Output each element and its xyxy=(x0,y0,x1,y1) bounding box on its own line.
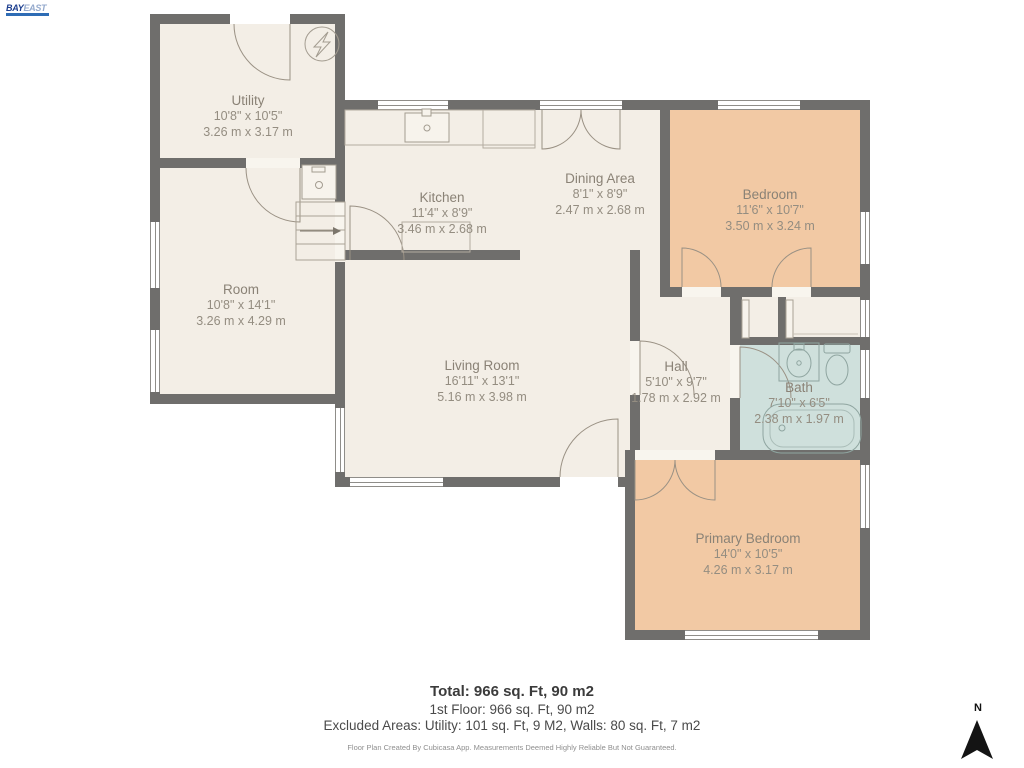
wall-segment xyxy=(618,477,635,487)
summary-disclaimer: Floor Plan Created By Cubicasa App. Meas… xyxy=(0,743,1024,752)
window xyxy=(718,100,800,110)
wall-segment xyxy=(150,158,246,168)
wall-segment xyxy=(335,250,520,260)
room-label-utility: Utility 10'8" x 10'5" 3.26 m x 3.17 m xyxy=(203,92,293,140)
room-name: Primary Bedroom xyxy=(695,530,800,547)
french-door-opening xyxy=(540,100,622,110)
room-dim-metric: 3.50 m x 3.24 m xyxy=(725,219,815,235)
bayeast-logo: BAYEAST xyxy=(6,3,49,16)
wall-segment xyxy=(660,110,670,255)
window xyxy=(150,330,160,392)
window xyxy=(860,350,870,398)
room-name: Hall xyxy=(631,358,721,375)
room-name: Bath xyxy=(754,379,844,396)
logo-underline xyxy=(6,13,49,16)
room-dim-metric: 2.38 m x 1.97 m xyxy=(754,412,844,428)
room-dim-imperial: 8'1" x 8'9" xyxy=(555,187,645,203)
wall-segment xyxy=(730,297,742,345)
room-name: Bedroom xyxy=(725,186,815,203)
room-floor-hall-passage xyxy=(640,255,660,297)
compass: N xyxy=(958,702,998,714)
room-name: Dining Area xyxy=(555,170,645,187)
room-floor-utility-and-room xyxy=(160,24,335,404)
wall-segment xyxy=(443,477,560,487)
room-dim-metric: 4.26 m x 3.17 m xyxy=(695,563,800,579)
window xyxy=(335,408,345,472)
room-label-bedroom: Bedroom 11'6" x 10'7" 3.50 m x 3.24 m xyxy=(725,186,815,234)
room-dim-metric: 5.16 m x 3.98 m xyxy=(437,390,527,406)
window xyxy=(685,630,818,640)
door-opening xyxy=(730,345,740,398)
room-dim-imperial: 10'8" x 14'1" xyxy=(196,298,286,314)
room-label-hall: Hall 5'10" x 9'7" 1.78 m x 2.92 m xyxy=(631,358,721,406)
room-label-kitchen: Kitchen 11'4" x 8'9" 3.46 m x 2.68 m xyxy=(397,189,487,237)
wall-segment xyxy=(335,477,350,487)
room-name: Utility xyxy=(203,92,293,109)
room-label-bath: Bath 7'10" x 6'5" 2.38 m x 1.97 m xyxy=(754,379,844,427)
room-dim-metric: 2.47 m x 2.68 m xyxy=(555,203,645,219)
room-label-room: Room 10'8" x 14'1" 3.26 m x 4.29 m xyxy=(196,281,286,329)
room-dim-imperial: 11'4" x 8'9" xyxy=(397,206,487,222)
wall-segment xyxy=(335,14,345,110)
door-opening xyxy=(560,477,618,487)
window xyxy=(350,477,443,487)
window xyxy=(860,300,870,337)
wall-segment xyxy=(150,394,345,404)
room-dim-imperial: 14'0" x 10'5" xyxy=(695,547,800,563)
window xyxy=(860,212,870,264)
door-opening xyxy=(335,202,345,262)
door-opening xyxy=(246,158,300,168)
door-opening xyxy=(635,450,715,460)
wall-segment xyxy=(660,255,670,297)
room-dim-metric: 1.78 m x 2.92 m xyxy=(631,391,721,407)
logo-text-secondary: EAST xyxy=(23,3,46,13)
wall-segment xyxy=(335,110,345,202)
room-dim-imperial: 10'8" x 10'5" xyxy=(203,109,293,125)
room-name: Room xyxy=(196,281,286,298)
wall-segment xyxy=(670,287,682,297)
wall-segment xyxy=(630,250,640,341)
window xyxy=(150,222,160,288)
wall-segment xyxy=(742,337,870,345)
wall-segment xyxy=(715,450,870,460)
room-dim-metric: 3.46 m x 2.68 m xyxy=(397,222,487,238)
room-label-dining-area: Dining Area 8'1" x 8'9" 2.47 m x 2.68 m xyxy=(555,170,645,218)
logo-text-primary: BAY xyxy=(6,3,23,13)
wall-segment xyxy=(721,287,772,297)
room-label-living-room: Living Room 16'11" x 13'1" 5.16 m x 3.98… xyxy=(437,357,527,405)
door-opening xyxy=(230,14,290,24)
room-floor-closets xyxy=(742,297,860,337)
room-dim-metric: 3.26 m x 3.17 m xyxy=(203,125,293,141)
window xyxy=(378,100,448,110)
compass-north-label: N xyxy=(958,702,998,714)
door-opening xyxy=(682,287,721,297)
summary-excluded-areas: Excluded Areas: Utility: 101 sq. Ft, 9 M… xyxy=(0,718,1024,734)
room-label-primary-bedroom: Primary Bedroom 14'0" x 10'5" 4.26 m x 3… xyxy=(695,530,800,578)
room-dim-imperial: 16'11" x 13'1" xyxy=(437,374,527,390)
room-dim-metric: 3.26 m x 4.29 m xyxy=(196,314,286,330)
room-dim-imperial: 5'10" x 9'7" xyxy=(631,375,721,391)
floor-plan-page: BAYEAST xyxy=(0,0,1024,768)
window xyxy=(860,465,870,528)
area-summary: Total: 966 sq. Ft, 90 m2 1st Floor: 966 … xyxy=(0,684,1024,752)
room-name: Living Room xyxy=(437,357,527,374)
room-dim-imperial: 11'6" x 10'7" xyxy=(725,203,815,219)
room-dim-imperial: 7'10" x 6'5" xyxy=(754,396,844,412)
summary-first-floor: 1st Floor: 966 sq. Ft, 90 m2 xyxy=(0,702,1024,718)
summary-total: Total: 966 sq. Ft, 90 m2 xyxy=(0,684,1024,700)
door-opening xyxy=(772,287,811,297)
room-name: Kitchen xyxy=(397,189,487,206)
